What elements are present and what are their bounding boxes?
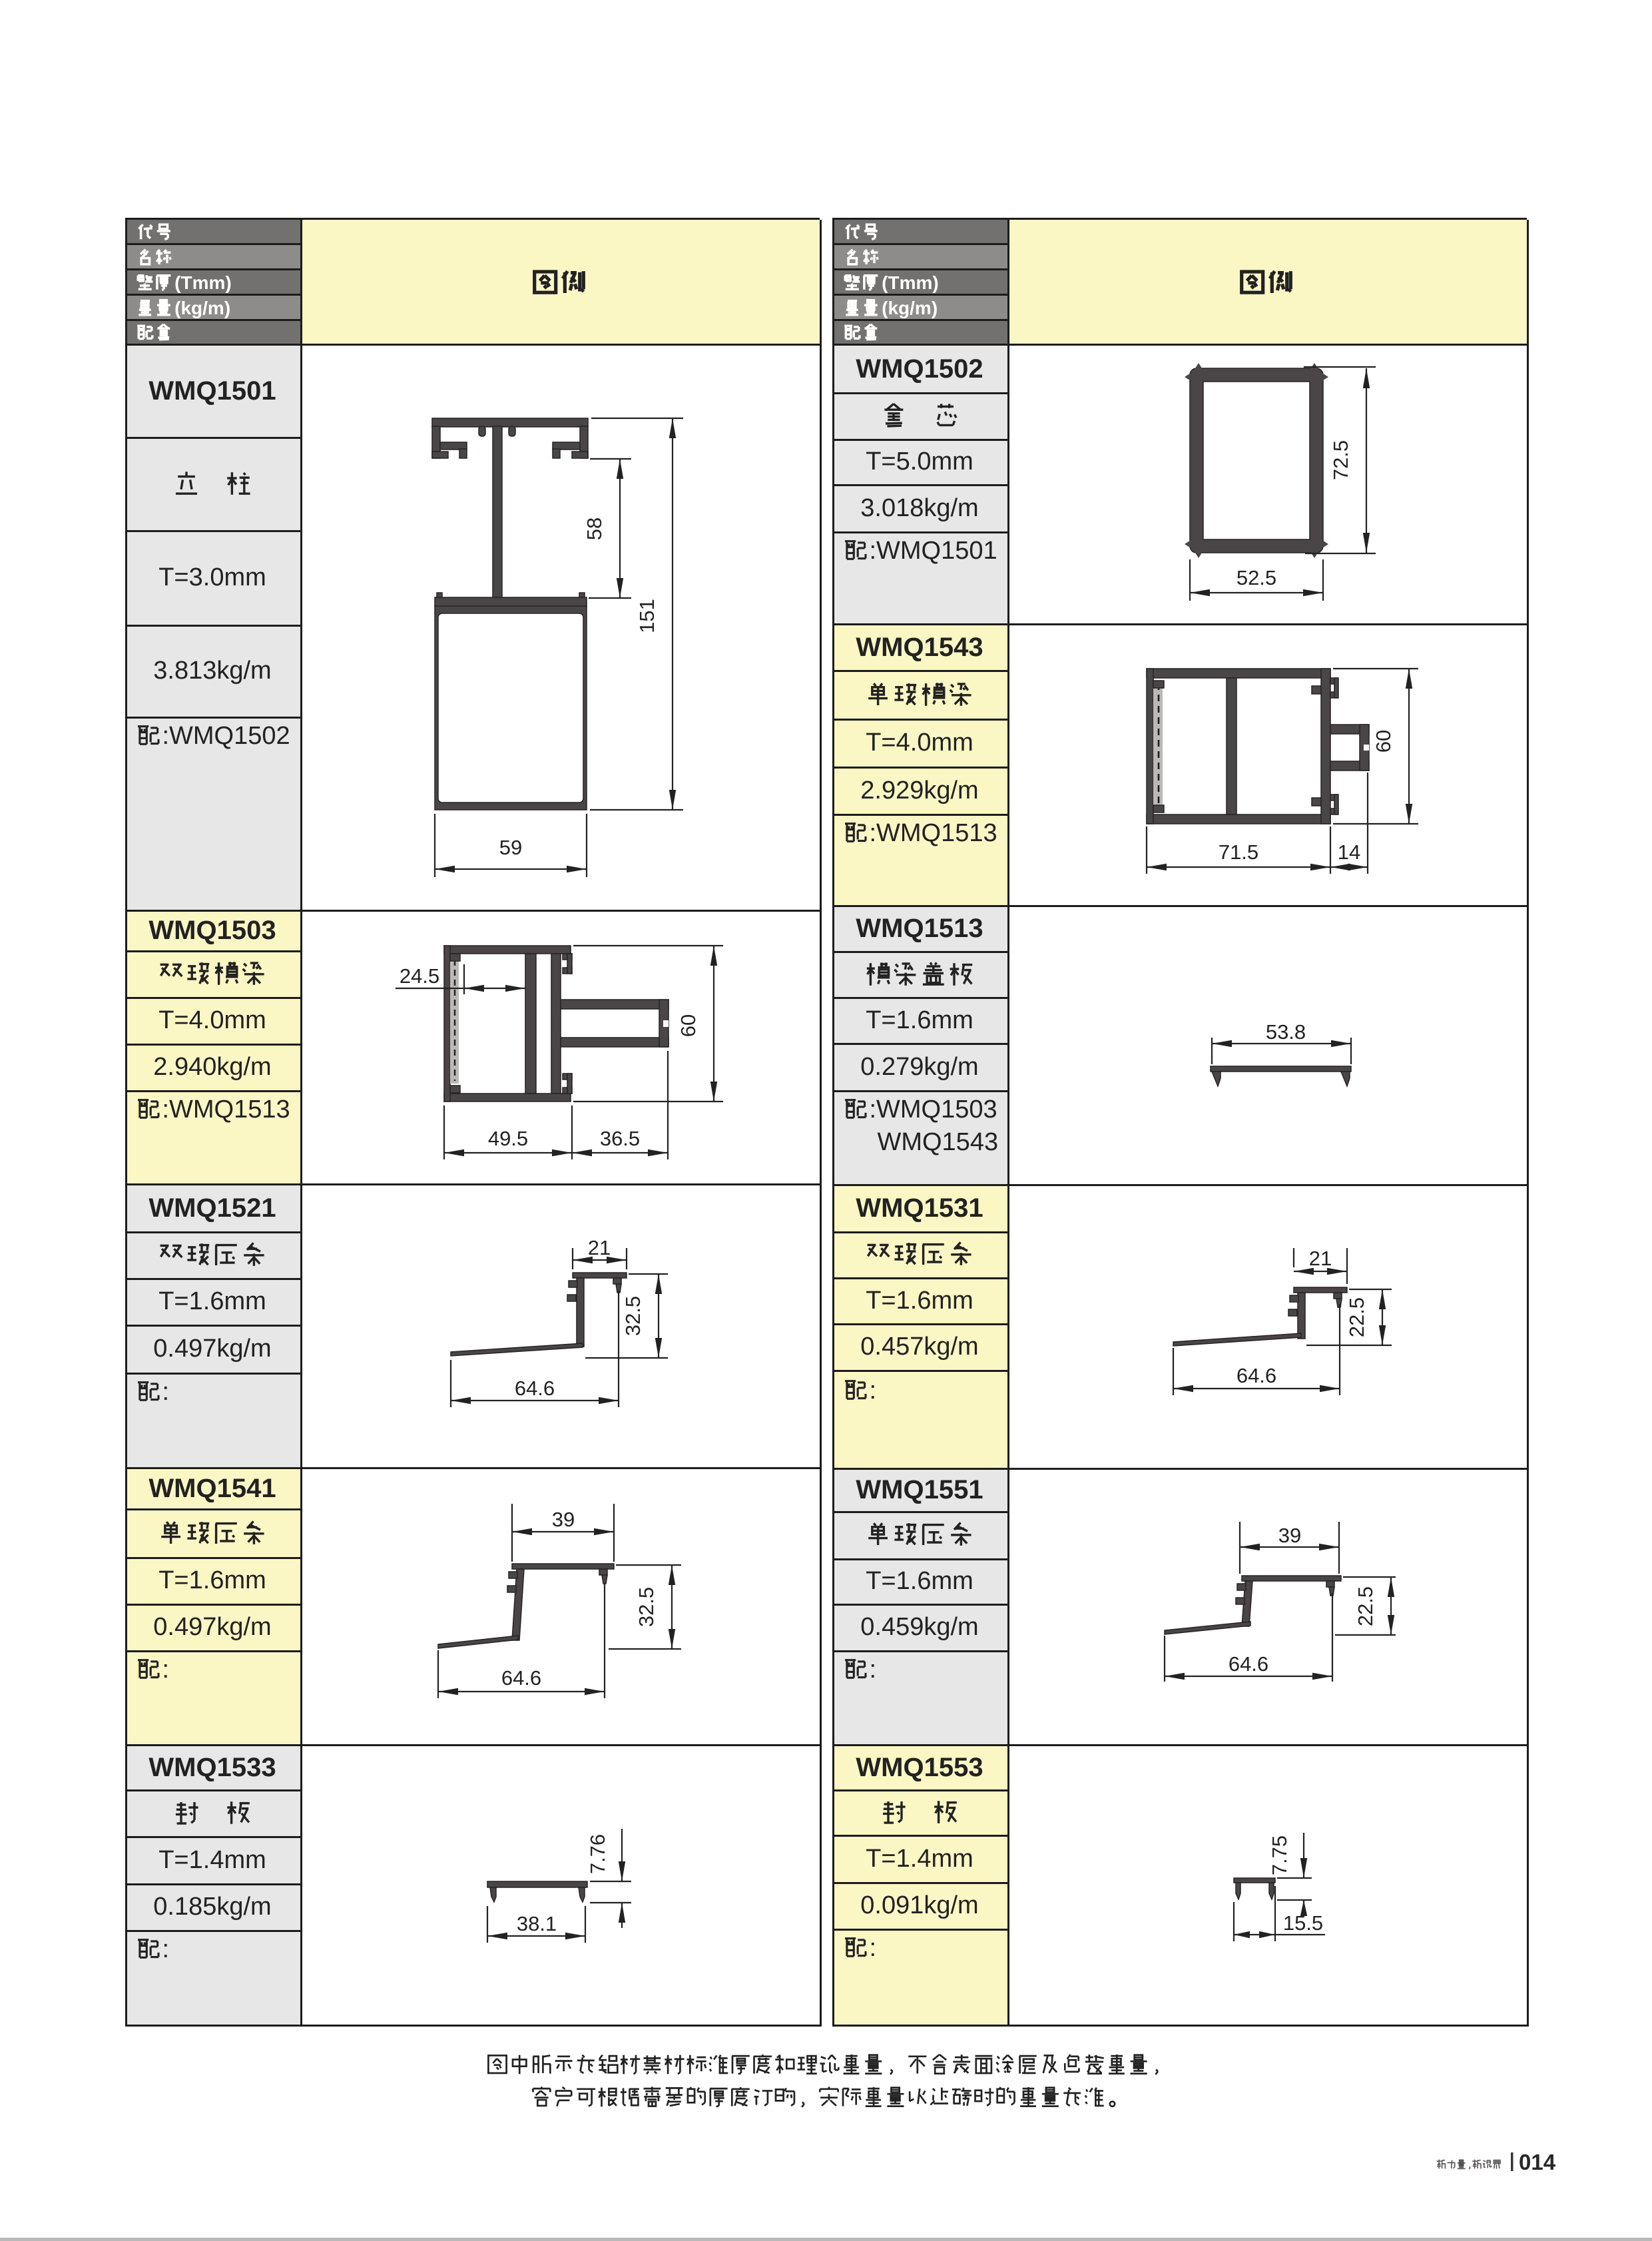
svg-text:T=1.6mm: T=1.6mm — [866, 1287, 973, 1315]
svg-text:22.5: 22.5 — [1345, 1297, 1368, 1337]
svg-text:59: 59 — [499, 836, 522, 859]
svg-text::: : — [869, 1377, 876, 1405]
svg-text:WMQ1531: WMQ1531 — [856, 1193, 983, 1223]
svg-text:21: 21 — [588, 1236, 611, 1259]
svg-text:53.8: 53.8 — [1266, 1020, 1306, 1044]
svg-text:3.018kg/m: 3.018kg/m — [860, 494, 978, 522]
svg-text:36.5: 36.5 — [600, 1127, 640, 1150]
svg-text::: : — [869, 1934, 876, 1962]
svg-text:38.1: 38.1 — [517, 1912, 557, 1935]
svg-text:T=1.4mm: T=1.4mm — [158, 1846, 266, 1874]
svg-text:2.940kg/m: 2.940kg/m — [153, 1053, 271, 1081]
svg-text:WMQ1521: WMQ1521 — [148, 1193, 276, 1223]
svg-text:151: 151 — [635, 599, 659, 633]
svg-text:64.6: 64.6 — [1229, 1652, 1268, 1676]
svg-text:WMQ1503: WMQ1503 — [148, 916, 276, 945]
svg-text::WMQ1502: :WMQ1502 — [162, 722, 290, 750]
svg-text:15.5: 15.5 — [1283, 1911, 1323, 1935]
svg-text:T=1.6mm: T=1.6mm — [866, 1567, 973, 1595]
svg-text:21: 21 — [1309, 1247, 1332, 1270]
svg-text:3.813kg/m: 3.813kg/m — [153, 657, 271, 685]
svg-text:7.76: 7.76 — [586, 1834, 609, 1874]
svg-text:014: 014 — [1519, 2150, 1556, 2174]
svg-text:39: 39 — [1278, 1524, 1301, 1547]
svg-text::: : — [162, 1378, 169, 1406]
svg-text:(kg/m): (kg/m) — [174, 298, 230, 318]
svg-text:T=4.0mm: T=4.0mm — [158, 1006, 266, 1034]
svg-text:WMQ1551: WMQ1551 — [856, 1475, 983, 1504]
svg-text:T=5.0mm: T=5.0mm — [866, 448, 973, 476]
svg-text:(kg/m): (kg/m) — [882, 298, 938, 318]
svg-text:0.279kg/m: 0.279kg/m — [860, 1053, 978, 1081]
svg-text:T=1.4mm: T=1.4mm — [866, 1845, 973, 1873]
svg-text:7.75: 7.75 — [1268, 1835, 1291, 1875]
svg-text:T=3.0mm: T=3.0mm — [158, 563, 266, 591]
svg-text:39: 39 — [552, 1508, 575, 1531]
svg-text:(Tmm): (Tmm) — [174, 272, 232, 293]
svg-text:WMQ1502: WMQ1502 — [856, 354, 983, 384]
svg-text:71.5: 71.5 — [1219, 840, 1258, 864]
svg-text:14: 14 — [1338, 840, 1360, 864]
svg-text::: : — [162, 1656, 169, 1684]
svg-text::: : — [869, 1656, 876, 1684]
svg-text:49.5: 49.5 — [488, 1127, 528, 1150]
svg-text:WMQ1533: WMQ1533 — [148, 1753, 276, 1782]
svg-text:(Tmm): (Tmm) — [882, 272, 939, 293]
svg-text:WMQ1501: WMQ1501 — [148, 376, 276, 406]
svg-text:60: 60 — [677, 1014, 700, 1037]
svg-text:64.6: 64.6 — [501, 1666, 541, 1690]
svg-text:WMQ1541: WMQ1541 — [148, 1474, 276, 1503]
svg-text::WMQ1501: :WMQ1501 — [869, 537, 997, 565]
svg-text:22.5: 22.5 — [1354, 1586, 1377, 1626]
svg-text:72.5: 72.5 — [1329, 440, 1352, 480]
svg-text::WMQ1513: :WMQ1513 — [869, 819, 997, 847]
svg-text::: : — [162, 1935, 169, 1963]
svg-text:T=1.6mm: T=1.6mm — [158, 1566, 266, 1594]
svg-text:WMQ1543: WMQ1543 — [856, 633, 983, 662]
svg-text:T=1.6mm: T=1.6mm — [158, 1287, 266, 1315]
svg-text:WMQ1553: WMQ1553 — [856, 1753, 983, 1782]
svg-text:0.457kg/m: 0.457kg/m — [860, 1333, 978, 1361]
svg-text:T=4.0mm: T=4.0mm — [866, 729, 973, 757]
svg-text:32.5: 32.5 — [635, 1587, 658, 1627]
svg-text:64.6: 64.6 — [515, 1377, 555, 1400]
svg-text:60: 60 — [1372, 730, 1395, 753]
svg-text:WMQ1513: WMQ1513 — [856, 914, 983, 943]
svg-text:0.497kg/m: 0.497kg/m — [153, 1335, 271, 1363]
svg-text:2.929kg/m: 2.929kg/m — [860, 777, 978, 804]
svg-text:32.5: 32.5 — [621, 1296, 645, 1336]
svg-text:52.5: 52.5 — [1237, 566, 1276, 589]
svg-text:24.5: 24.5 — [400, 964, 439, 988]
svg-text:T=1.6mm: T=1.6mm — [866, 1006, 973, 1034]
svg-text:0.185kg/m: 0.185kg/m — [153, 1893, 271, 1921]
svg-text:64.6: 64.6 — [1237, 1364, 1276, 1387]
svg-text:WMQ1543: WMQ1543 — [877, 1128, 998, 1156]
svg-text:0.091kg/m: 0.091kg/m — [860, 1891, 978, 1919]
svg-text::WMQ1503: :WMQ1503 — [869, 1096, 997, 1123]
svg-text:0.459kg/m: 0.459kg/m — [860, 1613, 978, 1641]
svg-text:0.497kg/m: 0.497kg/m — [153, 1613, 271, 1641]
svg-text::WMQ1513: :WMQ1513 — [162, 1096, 290, 1123]
svg-text:58: 58 — [583, 517, 606, 540]
